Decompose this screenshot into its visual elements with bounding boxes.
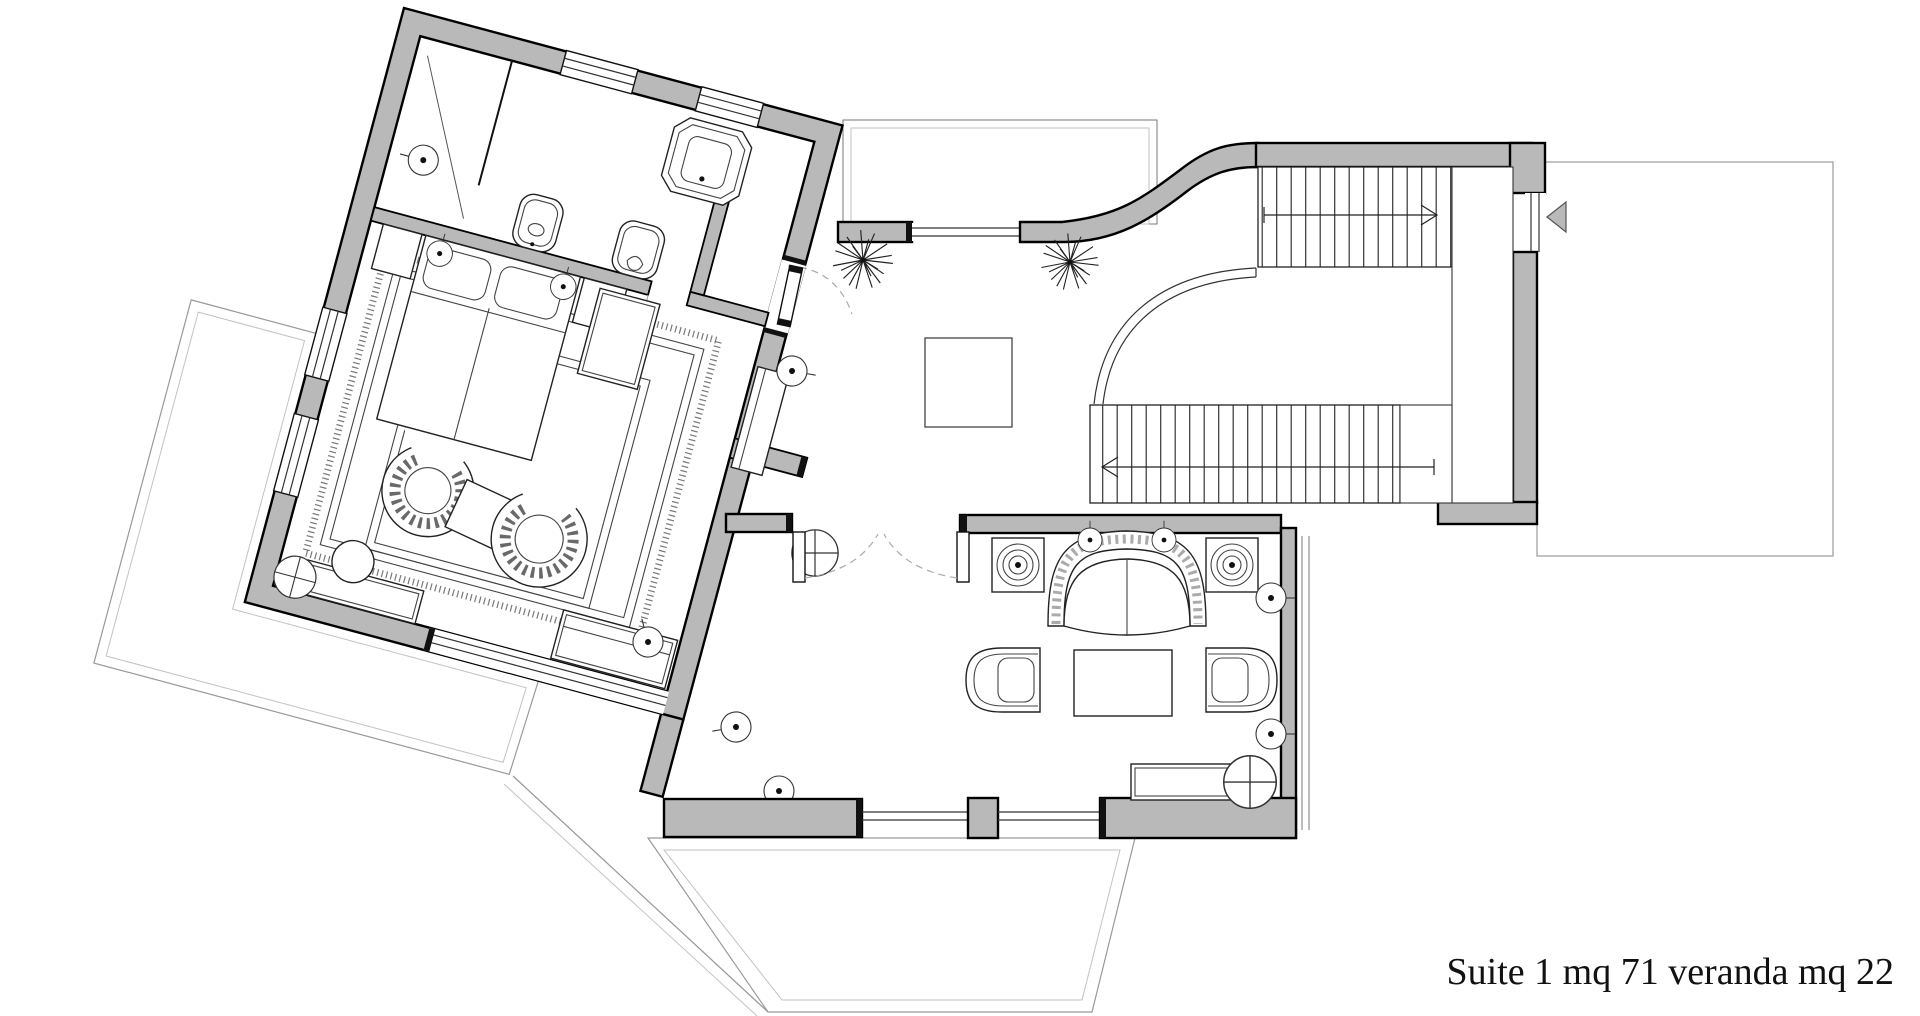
stairs [1090, 167, 1513, 503]
hall-floor-mat [925, 338, 1012, 427]
stairs-lower-run [1090, 405, 1400, 503]
coffee-table [1074, 650, 1172, 716]
wall-lamp-icon [710, 710, 754, 746]
living-room [966, 521, 1295, 808]
sink [658, 114, 755, 208]
floor-plan-drawing: Suite 1 mq 71 veranda mq 22 [0, 0, 1920, 1016]
curved-sofa [1048, 521, 1206, 636]
side-table-left [992, 538, 1044, 592]
stair-curved-railing [1094, 268, 1256, 404]
side-table-right [1206, 538, 1258, 592]
area-label: Suite 1 mq 71 veranda mq 22 [1447, 951, 1894, 993]
bidet [510, 191, 566, 255]
vestibule-door [777, 265, 852, 326]
armchair-left [966, 648, 1040, 712]
ceiling-light-icon [1224, 756, 1277, 809]
floor-plan-page: Suite 1 mq 71 veranda mq 22 [0, 0, 1920, 1016]
stairs-landing [1452, 167, 1513, 503]
right-terrace [1537, 162, 1833, 556]
armchair-right [1206, 648, 1277, 712]
entry-canopy-outline [843, 120, 1157, 224]
terrace-entry-arrow-icon [1547, 202, 1566, 232]
stairs-upper-run [1258, 167, 1452, 267]
wall-lamp-icon [396, 139, 441, 178]
